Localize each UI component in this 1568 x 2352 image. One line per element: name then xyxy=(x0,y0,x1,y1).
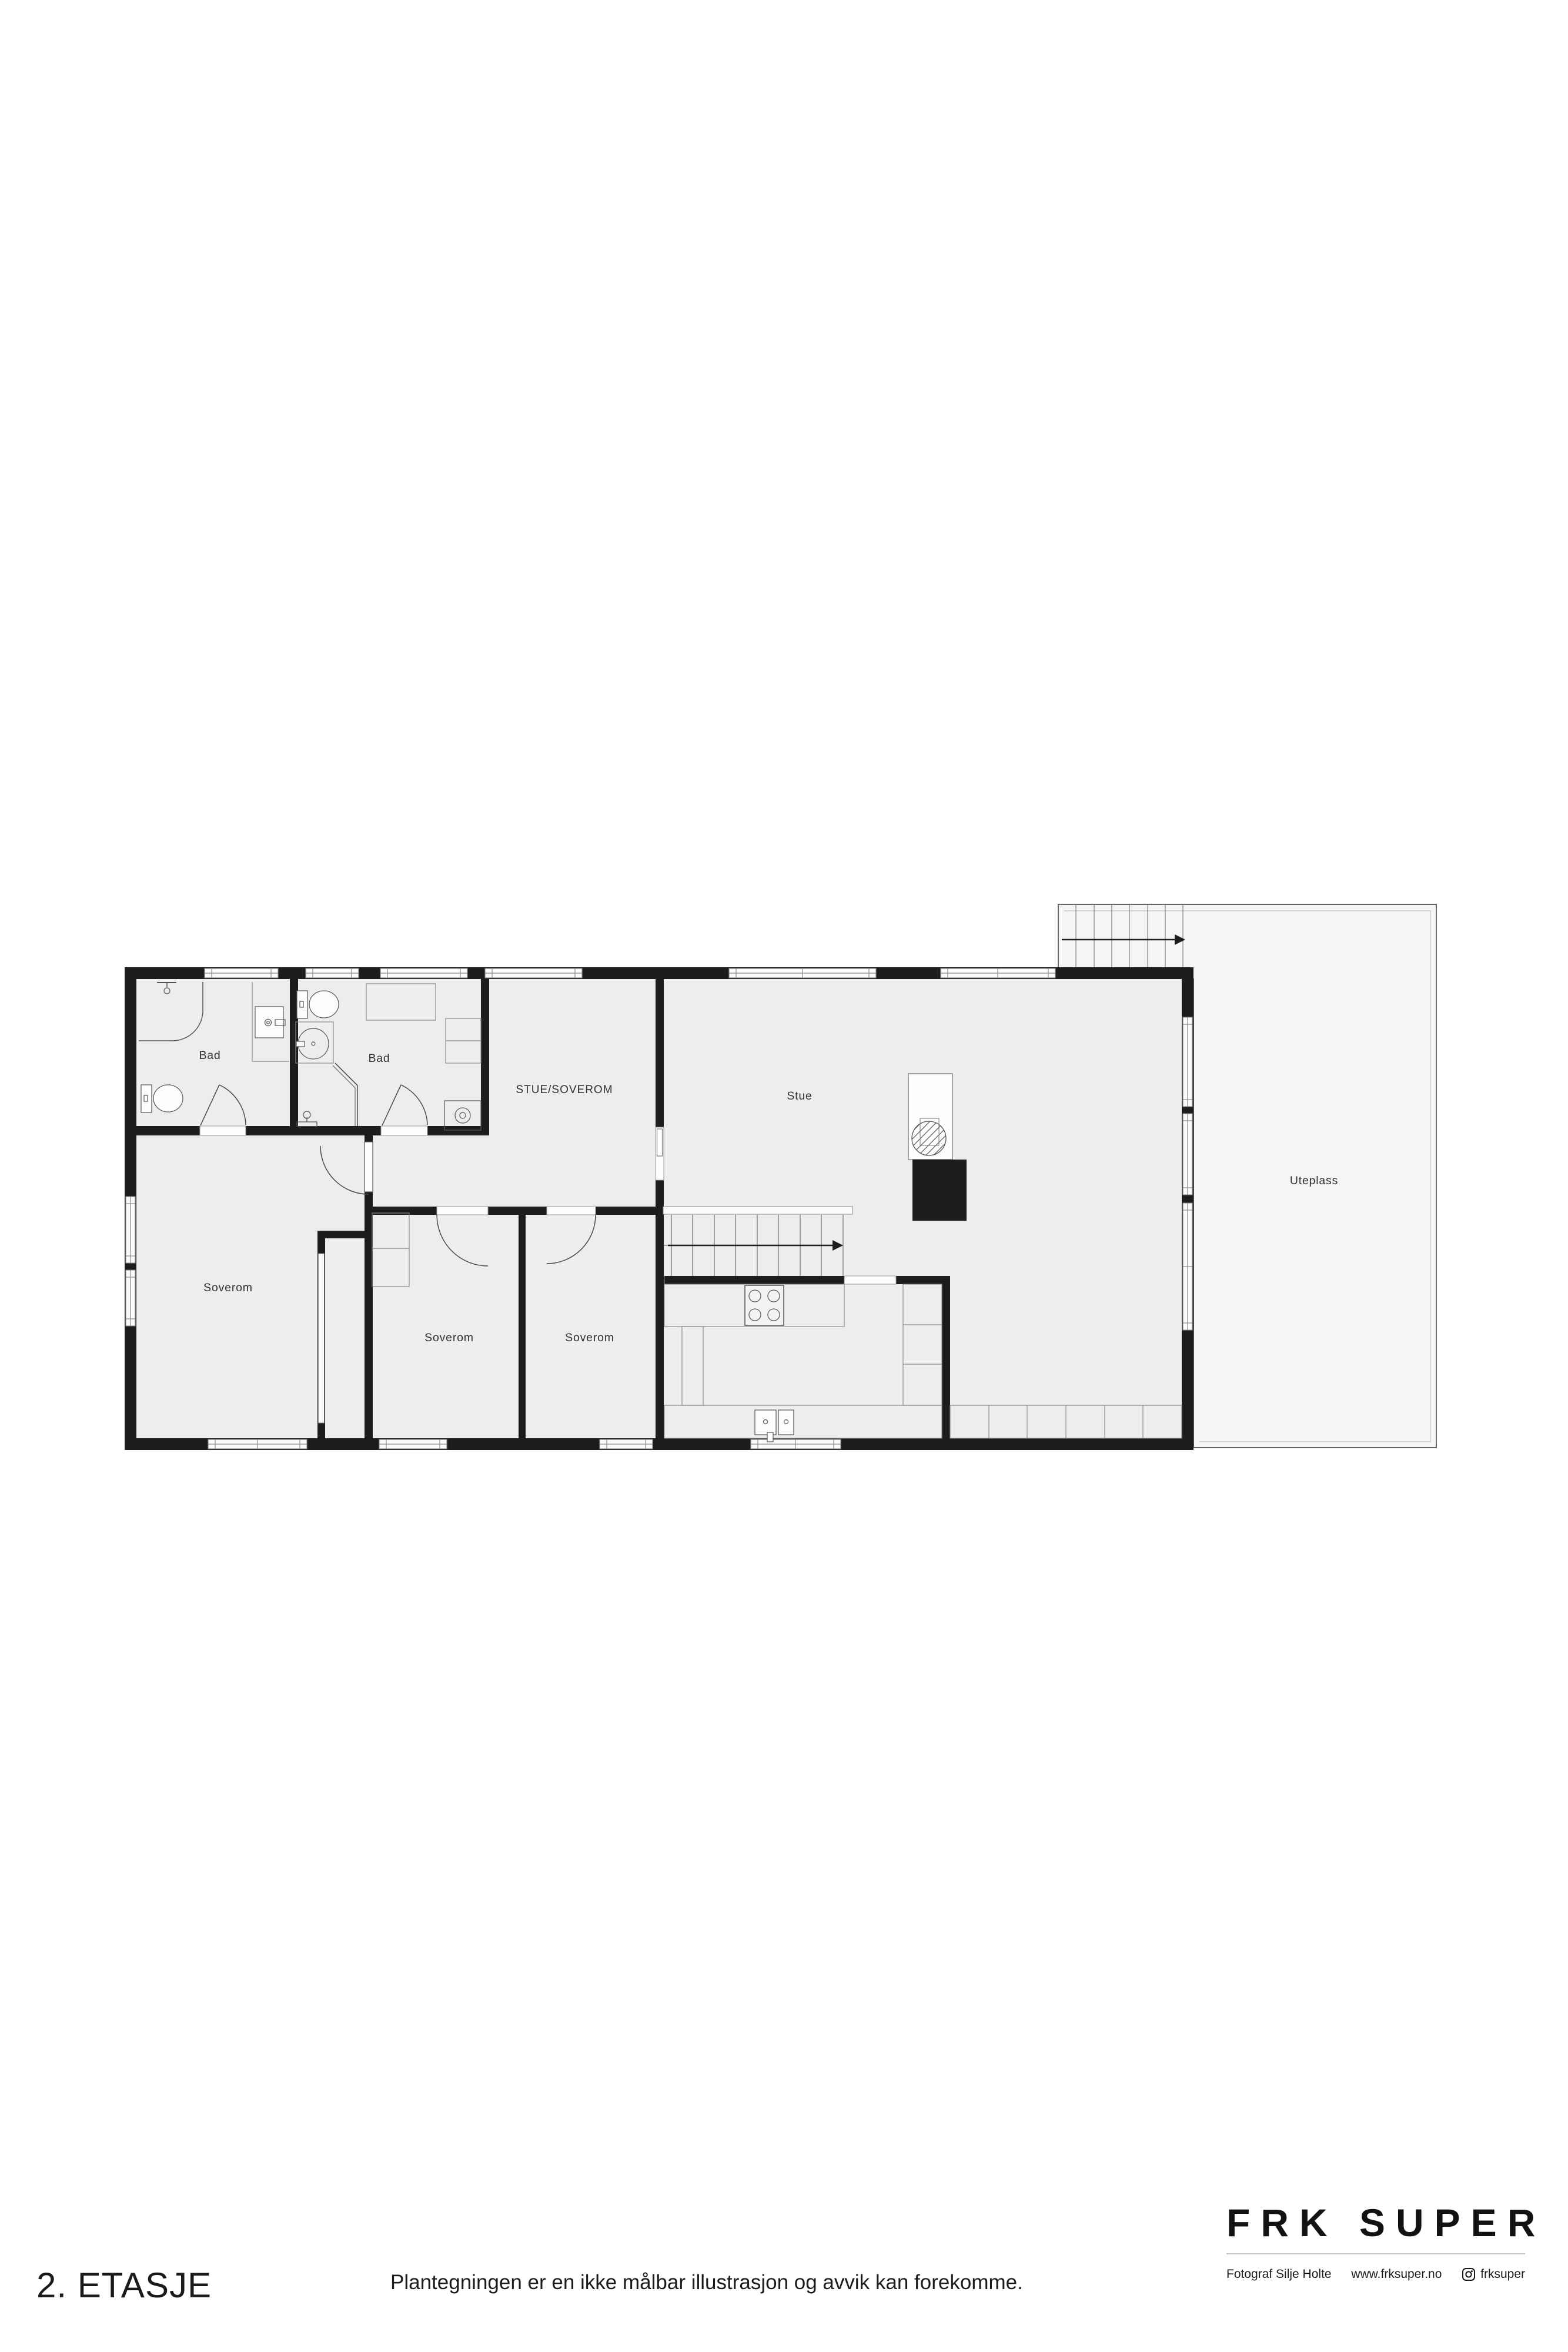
window xyxy=(379,1439,447,1449)
disclaimer-text: Plantegningen er en ikke målbar illustra… xyxy=(390,2271,1023,2294)
room-label-uteplass: Uteplass xyxy=(1290,1174,1338,1187)
window xyxy=(1183,1017,1192,1107)
sliding-door xyxy=(319,1254,325,1423)
photographer-credit: Fotograf Silje Holte xyxy=(1226,2267,1332,2281)
window xyxy=(1183,1114,1192,1195)
room-label-stue-soverom: STUE/SOVEROM xyxy=(516,1084,613,1096)
window xyxy=(126,1270,135,1326)
room-label-soverom3: Soverom xyxy=(565,1331,614,1344)
floor-plan: Bad Bad STUE/SOVEROM Stue Uteplass Sover… xyxy=(0,0,1568,2352)
window xyxy=(751,1439,841,1449)
chimney-block xyxy=(912,1160,967,1221)
room-label-bad1: Bad xyxy=(199,1049,220,1062)
floor-title: 2. ETASJE xyxy=(36,2265,212,2306)
room-label-bad2: Bad xyxy=(368,1052,390,1065)
window xyxy=(600,1439,653,1449)
stove-icon xyxy=(745,1285,784,1325)
toilet-icon xyxy=(141,1085,183,1112)
window xyxy=(306,968,359,978)
room-label-soverom2: Soverom xyxy=(424,1331,474,1344)
window xyxy=(941,968,1055,978)
toilet-icon xyxy=(297,991,339,1018)
window xyxy=(205,968,278,978)
brand-logo: FRK SUPER xyxy=(1226,2200,1527,2245)
window xyxy=(126,1197,135,1263)
pocket-door-leaf xyxy=(657,1129,663,1156)
instagram-credit: frksuper xyxy=(1462,2267,1525,2281)
brand-block: FRK SUPER Fotograf Silje Holte www.frksu… xyxy=(1226,2200,1527,2281)
brand-divider xyxy=(1226,2253,1525,2254)
window xyxy=(729,968,876,978)
instagram-icon xyxy=(1462,2267,1476,2281)
room-label-stue: Stue xyxy=(787,1090,812,1102)
instagram-handle: frksuper xyxy=(1480,2267,1525,2281)
window xyxy=(485,968,582,978)
window xyxy=(380,968,467,978)
hall-door-leaf xyxy=(365,1142,373,1192)
website-url: www.frksuper.no xyxy=(1351,2267,1442,2281)
window xyxy=(208,1439,307,1449)
window xyxy=(1183,1203,1192,1330)
room-label-soverom1: Soverom xyxy=(203,1281,253,1294)
